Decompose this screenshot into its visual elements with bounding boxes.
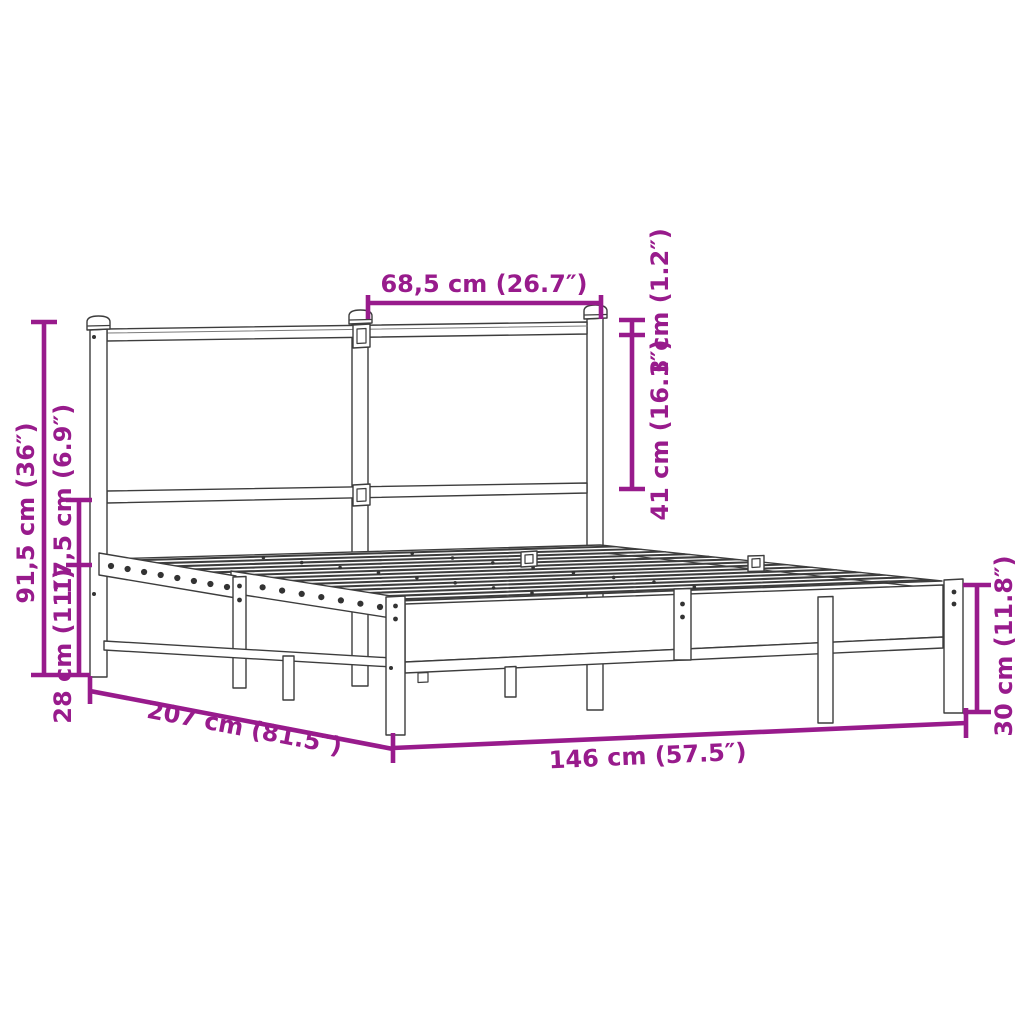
side-rail-joint-bracket [233, 577, 246, 689]
dim-label-foot-end-height: 30 cm (11.8″) [990, 555, 1018, 736]
bed-dimension-diagram: 68,5 cm (26.7″) 3 cm (1.2″) 41 cm (16.1″… [0, 0, 1024, 1024]
dim-label-frame-length: 207 cm (81.5″) [145, 696, 345, 761]
headboard-top-rail [107, 322, 587, 341]
dim-frame-width: 146 cm (57.5″) [393, 708, 966, 774]
dim-headboard-section-width: 68,5 cm (26.7″) [368, 270, 601, 319]
diagram-canvas: 68,5 cm (26.7″) 3 cm (1.2″) 41 cm (16.1″… [0, 0, 1024, 1024]
foot-long-support [818, 597, 833, 724]
dim-label-deck-to-rail-gap: 17,5 cm (6.9″) [49, 404, 77, 594]
dim-label-headboard-section-width: 68,5 cm (26.7″) [380, 270, 587, 298]
bed-drawing [87, 305, 963, 735]
post-finial-cap [584, 305, 607, 319]
underbed-stretcher [104, 641, 392, 667]
slat-clip [748, 556, 764, 572]
dim-headboard-panel-height: 41 cm (16.1″) [619, 335, 674, 521]
support-leg [283, 656, 294, 700]
dim-label-headboard-panel-height: 41 cm (16.1″) [646, 339, 674, 520]
foot-mid-support [674, 589, 691, 661]
foot-right-corner-post [944, 579, 963, 713]
corner-lug [418, 673, 428, 683]
dim-label-headboard-height: 91,5 cm (36″) [12, 422, 40, 603]
headboard-left-post [87, 316, 110, 677]
dim-label-underbed-clearance: 28 cm (11″) [49, 568, 77, 723]
dim-foot-end-height: 30 cm (11.8″) [963, 555, 1018, 736]
support-leg [505, 667, 516, 698]
headboard-middle-rail [107, 483, 587, 503]
post-finial-cap [87, 316, 110, 330]
dim-label-frame-width: 146 cm (57.5″) [548, 738, 747, 775]
slat-clip [521, 551, 537, 567]
